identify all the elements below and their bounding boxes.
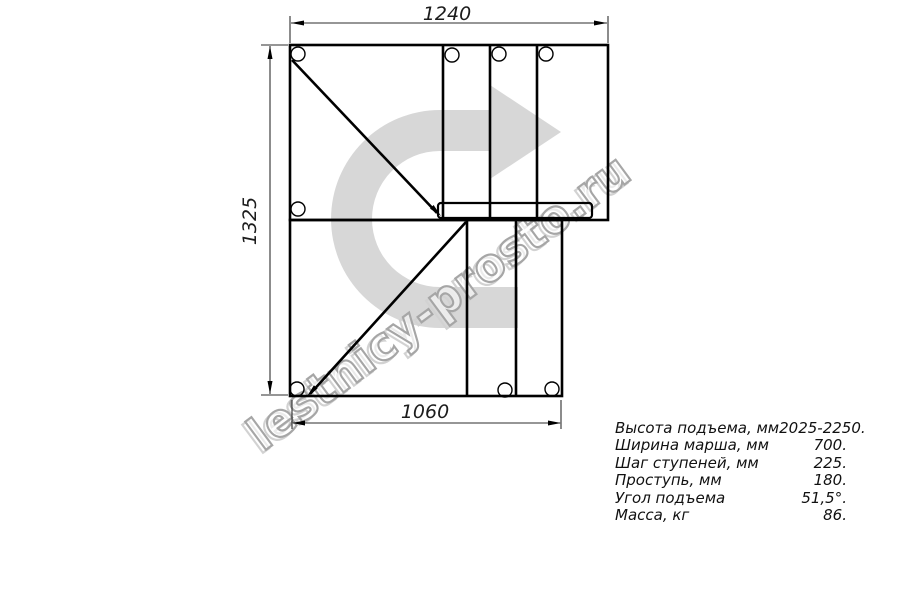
dim-arrow-icon — [268, 46, 273, 59]
spec-row-step-rise: Шаг ступеней, мм 225. — [615, 455, 847, 472]
spec-label: Шаг ступеней, мм — [615, 455, 759, 472]
mounting-hole — [291, 202, 305, 216]
specs-table: Высота подъема, мм 2025-2250. Ширина мар… — [615, 420, 847, 524]
spec-value: 86. — [823, 507, 847, 524]
mounting-hole — [492, 47, 506, 61]
spec-label: Масса, кг — [615, 507, 689, 524]
dim-arrow-icon — [548, 421, 561, 426]
dim-top-value: 1240 — [423, 3, 471, 25]
spec-label: Проступь, мм — [615, 472, 722, 489]
spec-value: 225. — [814, 455, 847, 472]
spec-value: 700. — [814, 437, 847, 454]
dim-arrow-icon — [594, 21, 607, 26]
spec-label: Угол подъема — [615, 490, 725, 507]
spec-row-mass: Масса, кг 86. — [615, 507, 847, 524]
spec-label: Ширина марша, мм — [615, 437, 769, 454]
spec-value: 180. — [814, 472, 847, 489]
spec-row-angle: Угол подъема 51,5°. — [615, 490, 847, 507]
mounting-hole — [445, 48, 459, 62]
dimension-left — [261, 45, 288, 395]
dim-arrow-icon — [291, 21, 304, 26]
spec-row-height: Высота подъема, мм 2025-2250. — [615, 420, 847, 437]
spec-label: Высота подъема, мм — [615, 420, 779, 437]
spec-value: 51,5°. — [801, 490, 847, 507]
spec-value: 2025-2250. — [779, 420, 866, 437]
mounting-hole — [291, 47, 305, 61]
dim-bottom-value: 1060 — [401, 401, 449, 423]
mounting-hole — [545, 382, 559, 396]
spec-row-tread: Проступь, мм 180. — [615, 472, 847, 489]
dim-left-value: 1325 — [239, 197, 261, 245]
mounting-hole — [539, 47, 553, 61]
spec-row-flight-width: Ширина марша, мм 700. — [615, 437, 847, 454]
